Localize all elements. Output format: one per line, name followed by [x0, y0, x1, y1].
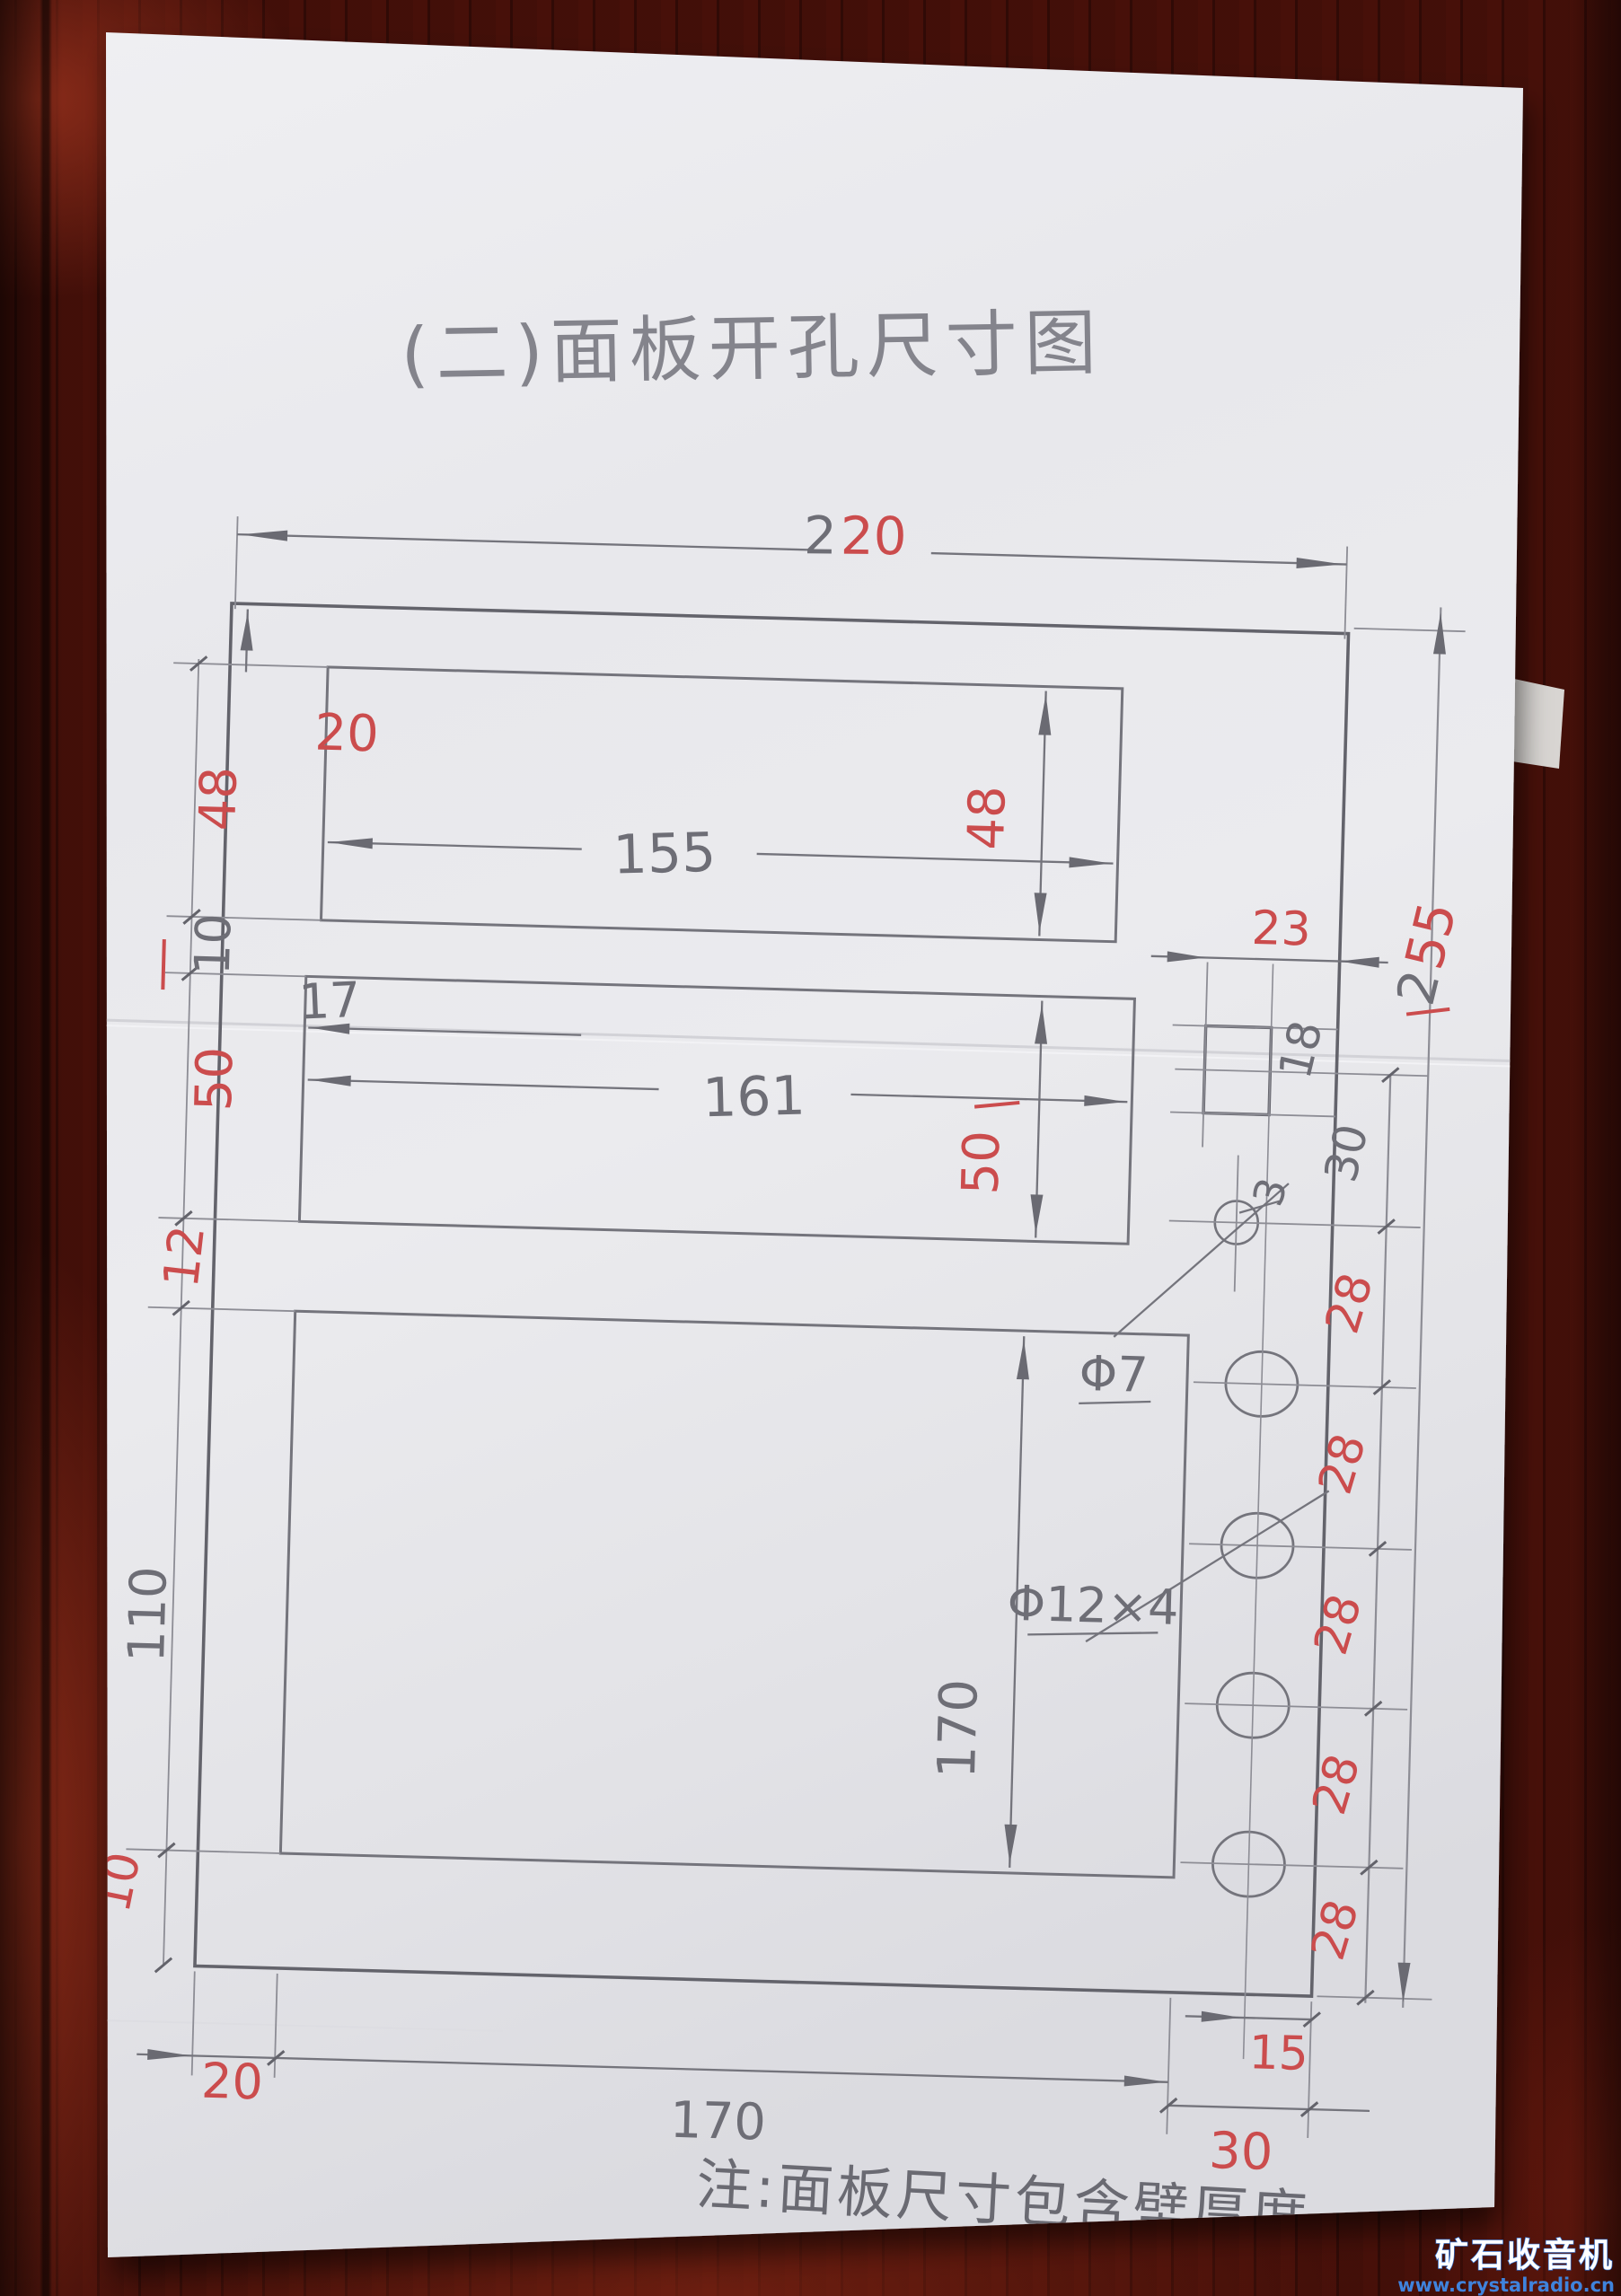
drawing-title: (二)面板开孔尺寸图 — [401, 301, 1105, 396]
photo-of-drawing: (二)面板开孔尺寸图 — [0, 0, 1621, 2296]
dim-top-margin: 20 — [314, 704, 380, 764]
background-paper-tab — [1512, 679, 1564, 769]
dim-slot2-width: 161 — [701, 1065, 806, 1130]
dim-panel-left-height: 110 — [118, 1566, 179, 1664]
watermark-name: 矿石收音机 — [1435, 2236, 1615, 2274]
dim-slot1-height-left: 48 — [189, 766, 249, 831]
dim-bottom-width: 170 — [669, 2091, 767, 2152]
label-large-holes: Φ12×4 — [1007, 1575, 1179, 1636]
watermark-url: www.crystalradio.cn — [1397, 2274, 1615, 2296]
dim-slot2-offset: 17 — [297, 972, 361, 1031]
watermark: 矿石收音机 www.crystalradio.cn — [1397, 2236, 1615, 2296]
dim-gap2: 12 — [153, 1222, 216, 1289]
dim-overall-width: 220 — [804, 505, 907, 567]
dim-gap1: 10 — [184, 912, 242, 975]
dim-slot2-height: 50 — [952, 1130, 1012, 1195]
dim-slot1-height: 48 — [957, 785, 1018, 850]
dim-slot1-width: 155 — [612, 822, 717, 887]
label-small-hole: Φ7 — [1079, 1345, 1150, 1403]
dim-center-to-edge: 15 — [1248, 2026, 1309, 2081]
dim-small-rect-width: 23 — [1251, 902, 1312, 957]
dim-bottom-margin-right: 30 — [1208, 2122, 1273, 2182]
dim-bottom-margin-left: 20 — [200, 2053, 263, 2111]
dim-inner-height: 170 — [926, 1678, 990, 1780]
dim-slot2-height-left: 50 — [185, 1046, 245, 1112]
